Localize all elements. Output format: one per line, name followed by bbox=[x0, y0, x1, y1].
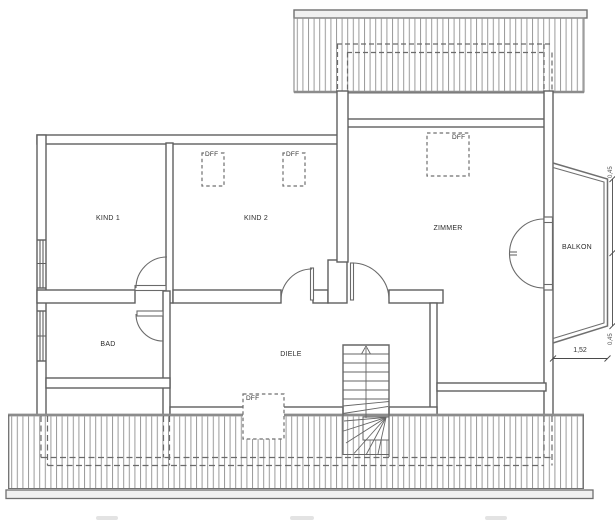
wall-pillar bbox=[328, 260, 347, 303]
south-terrace-decking bbox=[8, 417, 584, 489]
walls bbox=[37, 91, 553, 415]
room-label-kind2: KIND 2 bbox=[226, 215, 286, 223]
skylight-label-4: DFF bbox=[245, 395, 260, 402]
wall-corridor-a bbox=[37, 290, 135, 303]
door-zimmer bbox=[351, 263, 390, 300]
wall-diele-right bbox=[430, 303, 437, 415]
wall-zimmer-top bbox=[347, 119, 546, 127]
room-label-kind1: KIND 1 bbox=[78, 215, 138, 223]
wall-bad-south bbox=[46, 378, 170, 388]
floor-plan-canvas: KIND 1 KIND 2 ZIMMER BAD DIELE BALKON DF… bbox=[0, 0, 615, 520]
wall-corridor-c bbox=[313, 290, 328, 303]
room-label-balkon: BALKON bbox=[552, 244, 602, 252]
south-terrace-rail bbox=[6, 490, 593, 499]
cropped-dimension-text-1 bbox=[96, 516, 118, 520]
south-terrace bbox=[6, 415, 593, 499]
floor-plan-linework bbox=[0, 0, 615, 520]
wall-top bbox=[37, 135, 339, 144]
door-kind2 bbox=[281, 268, 314, 300]
stair-housing-landing bbox=[348, 93, 545, 120]
dimension-balcony-width: 1,52 bbox=[561, 347, 599, 354]
wall-corridor-b bbox=[173, 290, 281, 303]
wall-corridor-d bbox=[389, 290, 443, 303]
staircase bbox=[343, 345, 389, 457]
wall-bad-diele bbox=[163, 291, 170, 415]
skylight-label-2: DFF bbox=[285, 151, 300, 158]
window-bad bbox=[37, 311, 46, 362]
door-bad bbox=[136, 311, 163, 341]
room-label-diele: DIELE bbox=[266, 351, 316, 359]
room-label-bad: BAD bbox=[88, 341, 128, 349]
door-kind1 bbox=[135, 257, 167, 291]
north-balcony bbox=[294, 10, 587, 92]
wall-kind2-zimmer bbox=[337, 91, 348, 262]
dimension-right-bottom: 0,45 bbox=[608, 333, 614, 345]
skylight-label-1: DFF bbox=[204, 151, 219, 158]
stair-direction-arrow bbox=[362, 346, 371, 418]
balkon-railing bbox=[553, 163, 608, 343]
room-label-zimmer: ZIMMER bbox=[418, 225, 478, 233]
window-kind1 bbox=[37, 240, 46, 289]
skylight-label-3: DFF bbox=[451, 134, 466, 141]
dimension-right-top: 0,45 bbox=[608, 166, 614, 178]
cropped-dimension-text-3 bbox=[485, 516, 507, 520]
north-balcony-rail bbox=[294, 10, 587, 18]
door-balkon-french bbox=[510, 217, 553, 290]
cropped-dimension-text-2 bbox=[290, 516, 314, 520]
wall-southeast bbox=[437, 383, 546, 391]
wall-kind1-kind2 bbox=[166, 143, 173, 303]
